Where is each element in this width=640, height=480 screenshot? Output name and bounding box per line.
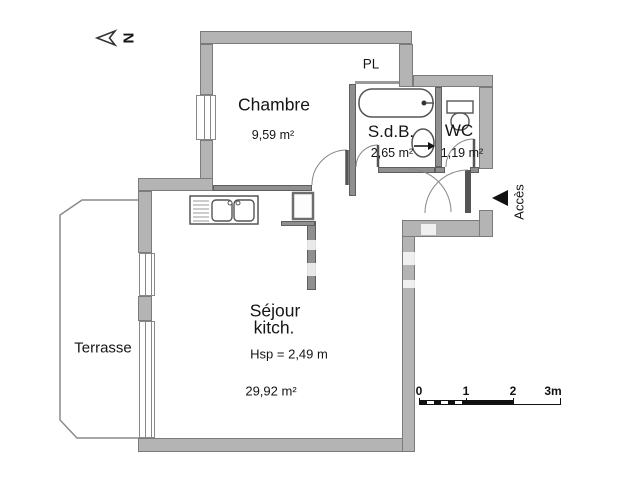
north-label: N (120, 33, 137, 44)
scale-tick (513, 398, 514, 405)
scale-tick (419, 398, 420, 405)
watermark (306, 263, 317, 276)
access-label: Accès (512, 184, 527, 219)
room-label-chambre: Chambre (238, 95, 310, 116)
room-label-kitch: kitch. (254, 318, 295, 339)
ceiling-height-label: Hsp = 2,49 m (250, 347, 328, 362)
room-label-terrasse: Terrasse (74, 340, 132, 357)
scale-tick (560, 398, 561, 405)
room-area-sdb: 2,65 m² (371, 146, 413, 160)
bathtub-icon (359, 89, 434, 117)
scale-segment-thin (513, 404, 560, 405)
room-area-wc: 1,19 m² (441, 146, 483, 160)
room-area-sejour: 29,92 m² (245, 384, 296, 399)
watermark (421, 224, 436, 235)
scale-segment-dashed (419, 400, 466, 405)
watermark (403, 280, 415, 288)
door-entrance (408, 169, 471, 213)
scale-tick (466, 398, 467, 405)
north-arrow-icon (97, 31, 115, 45)
room-label-sdb: S.d.B. (368, 122, 414, 142)
watermark (306, 240, 317, 250)
sink-icon (412, 129, 435, 157)
room-area-chambre: 9,59 m² (252, 128, 294, 142)
scale-segment-solid (466, 400, 513, 405)
room-label-wc: WC (445, 121, 473, 141)
scale-label-3m: 3m (544, 384, 561, 398)
door-chambre (312, 150, 347, 185)
watermark (403, 252, 415, 265)
room-label-placard: PL (363, 57, 380, 72)
scale-label-0: 0 (416, 384, 423, 398)
kitchen-sink-icon (190, 196, 258, 224)
access-arrow-icon (492, 190, 508, 206)
scale-label-1: 1 (463, 384, 470, 398)
column (293, 193, 313, 219)
fixtures-layer (0, 0, 640, 480)
floor-plan: N Chambre 9,59 m² PL S.d.B. 2,65 m² WC 1… (0, 0, 640, 480)
scale-label-2: 2 (510, 384, 517, 398)
